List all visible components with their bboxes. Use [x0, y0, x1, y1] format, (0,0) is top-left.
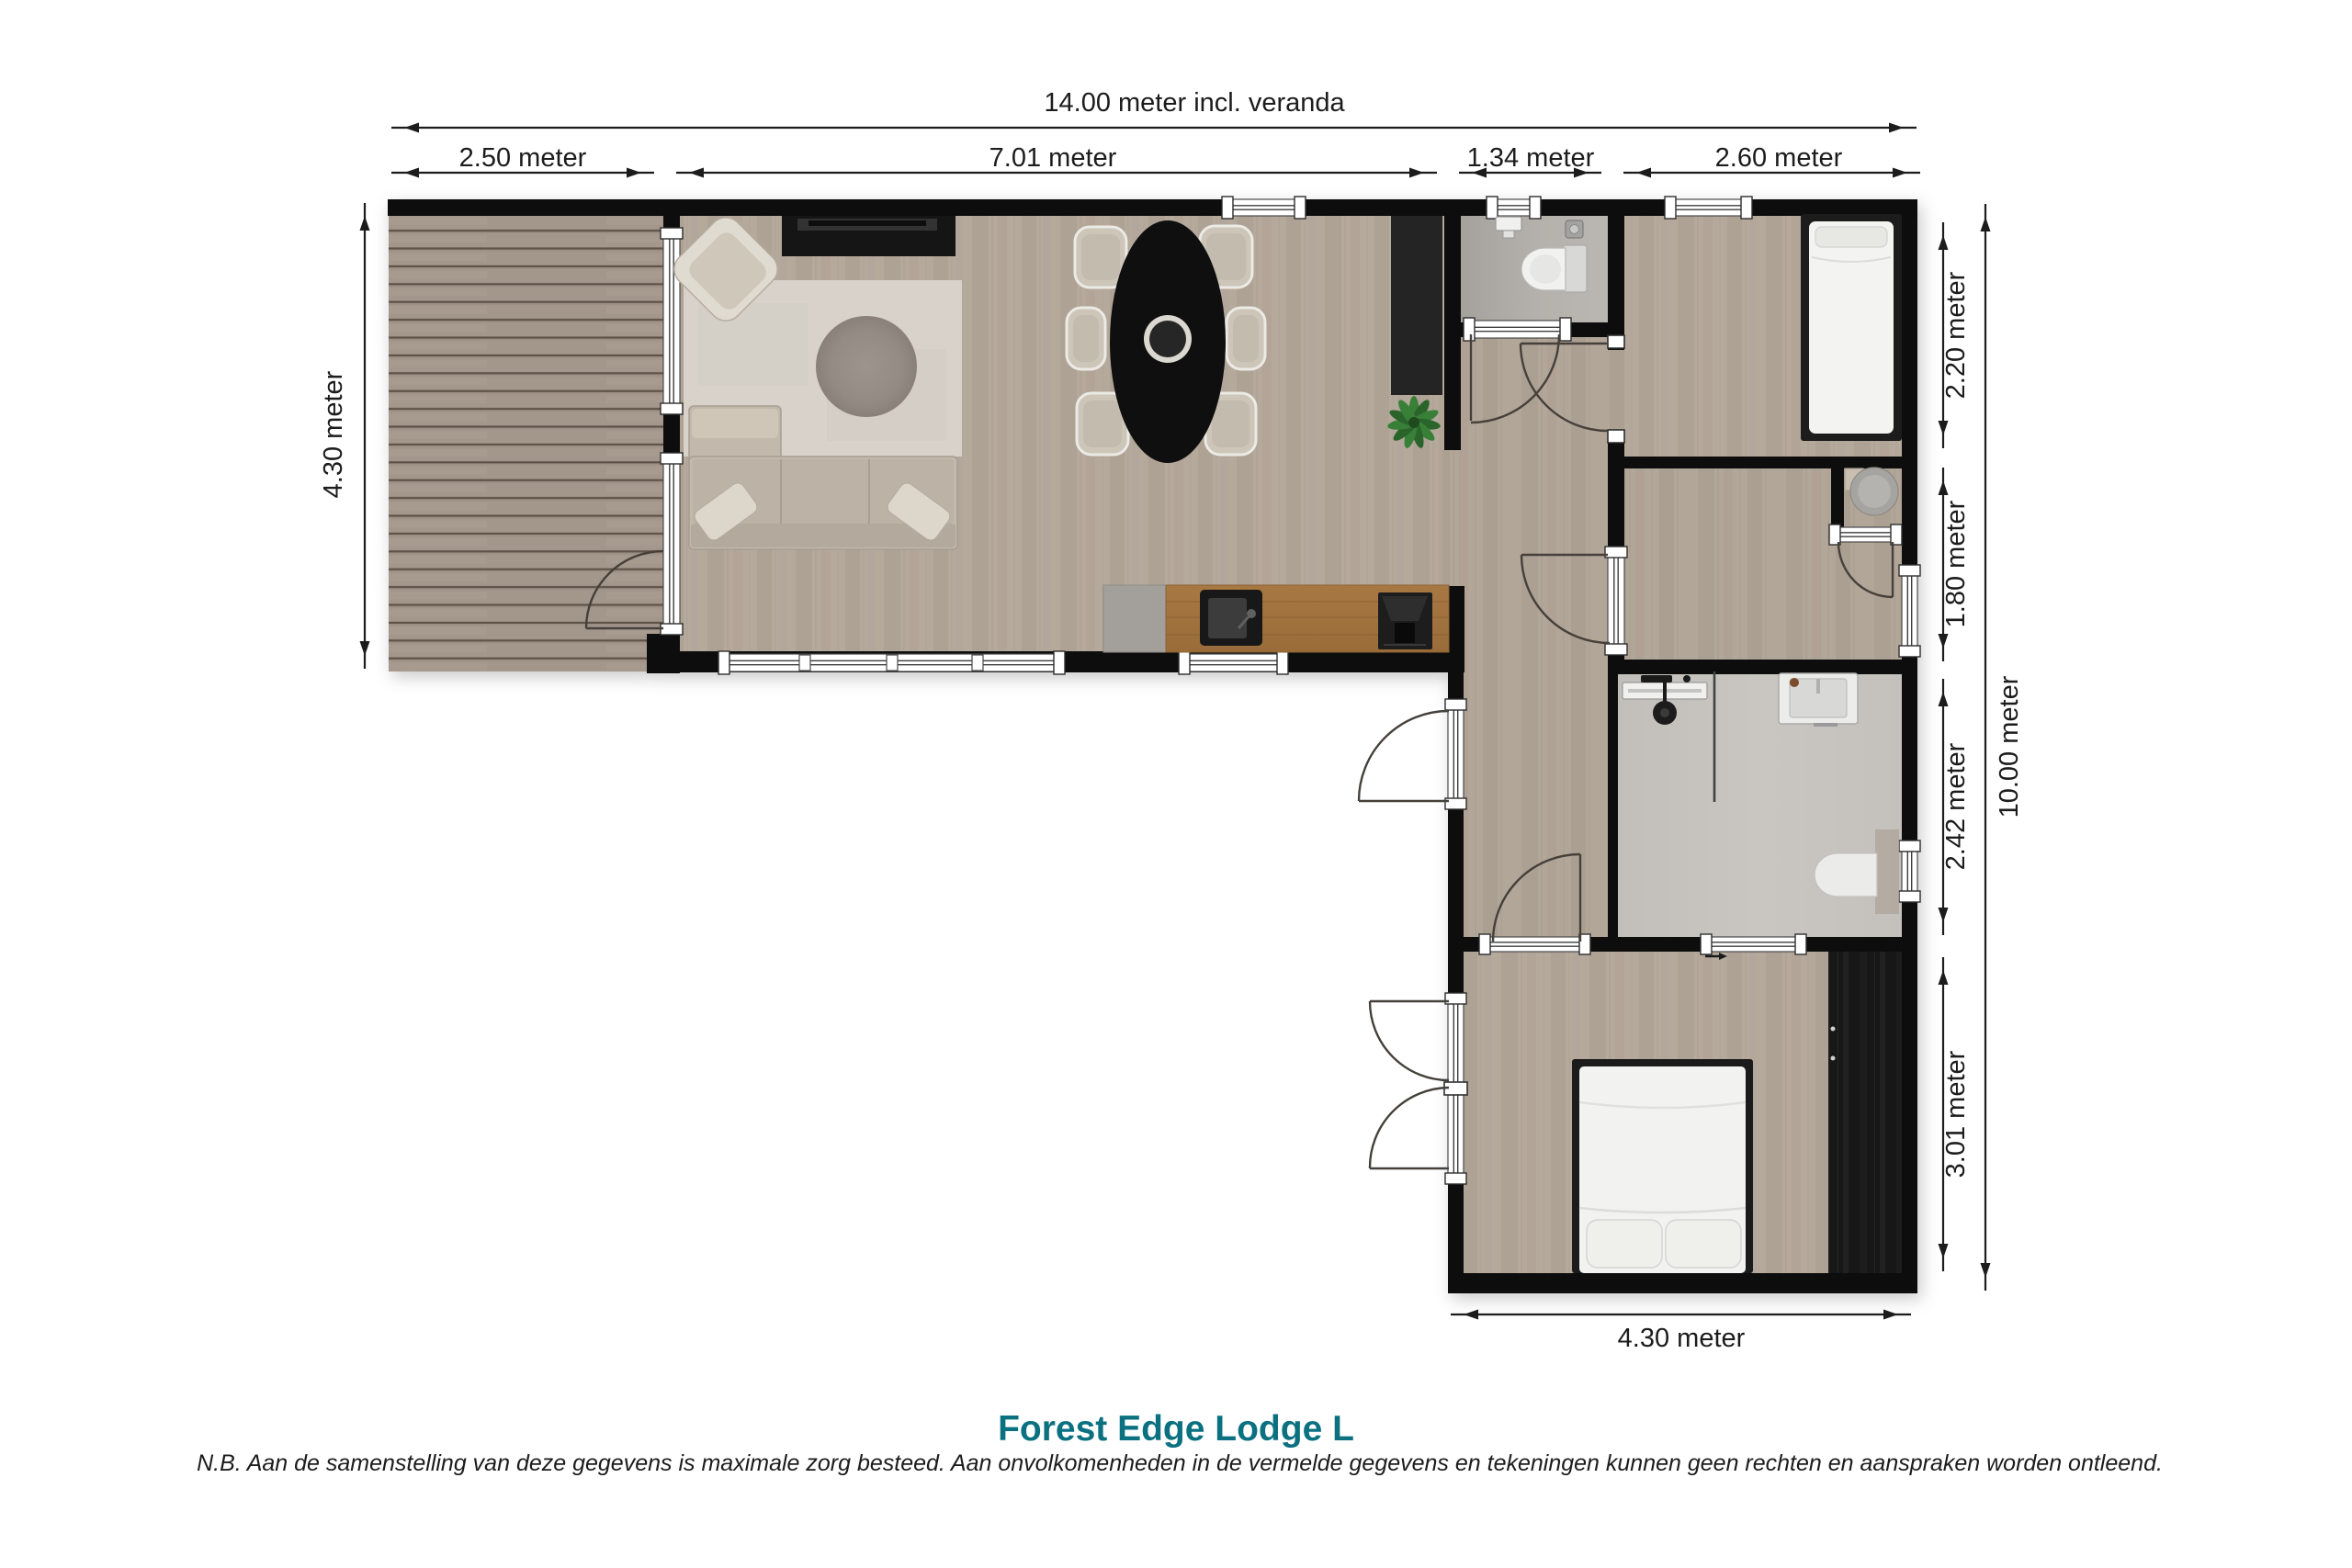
svg-text:2.60 meter: 2.60 meter: [1715, 143, 1843, 173]
svg-text:10.00 meter: 10.00 meter: [1995, 675, 2024, 818]
svg-text:2.42 meter: 2.42 meter: [1941, 742, 1971, 870]
svg-text:1.34 meter: 1.34 meter: [1467, 143, 1595, 173]
svg-text:4.30 meter: 4.30 meter: [1618, 1324, 1746, 1353]
svg-text:14.00 meter incl. veranda: 14.00 meter incl. veranda: [1044, 88, 1345, 118]
svg-text:N.B. Aan de samenstelling van: N.B. Aan de samenstelling van deze gegev…: [197, 1450, 2163, 1476]
svg-text:1.80 meter: 1.80 meter: [1941, 500, 1971, 627]
svg-text:3.01 meter: 3.01 meter: [1941, 1050, 1971, 1178]
svg-text:Forest Edge Lodge L: Forest Edge Lodge L: [998, 1409, 1354, 1449]
svg-text:2.50 meter: 2.50 meter: [459, 143, 587, 173]
svg-text:2.20 meter: 2.20 meter: [1941, 271, 1971, 399]
svg-text:4.30 meter: 4.30 meter: [319, 370, 348, 498]
svg-text:7.01 meter: 7.01 meter: [989, 143, 1117, 173]
